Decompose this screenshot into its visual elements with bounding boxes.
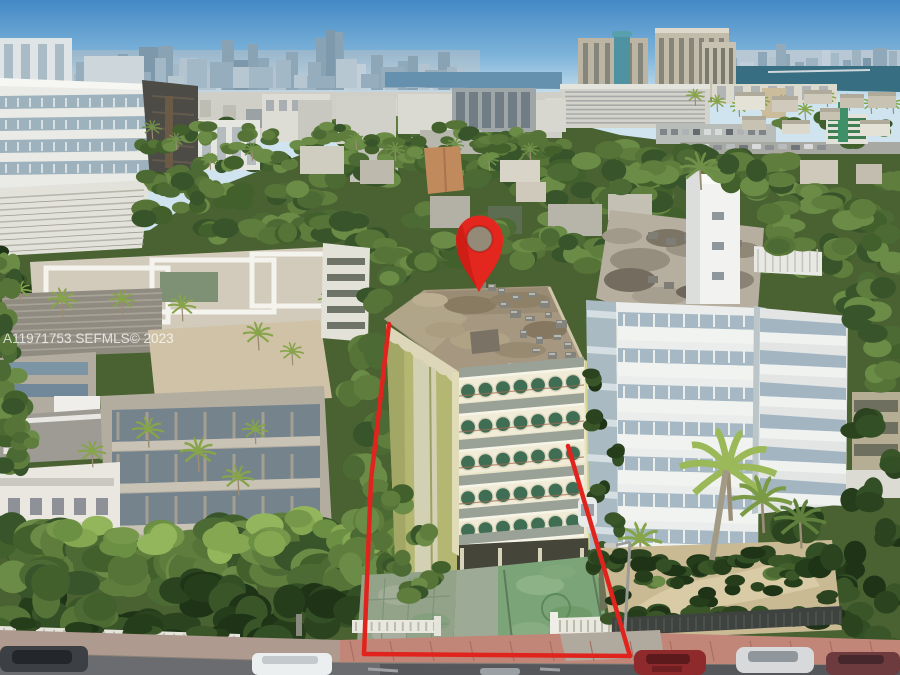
- svg-text:A11971753 SEFMLS© 2023: A11971753 SEFMLS© 2023: [3, 331, 174, 346]
